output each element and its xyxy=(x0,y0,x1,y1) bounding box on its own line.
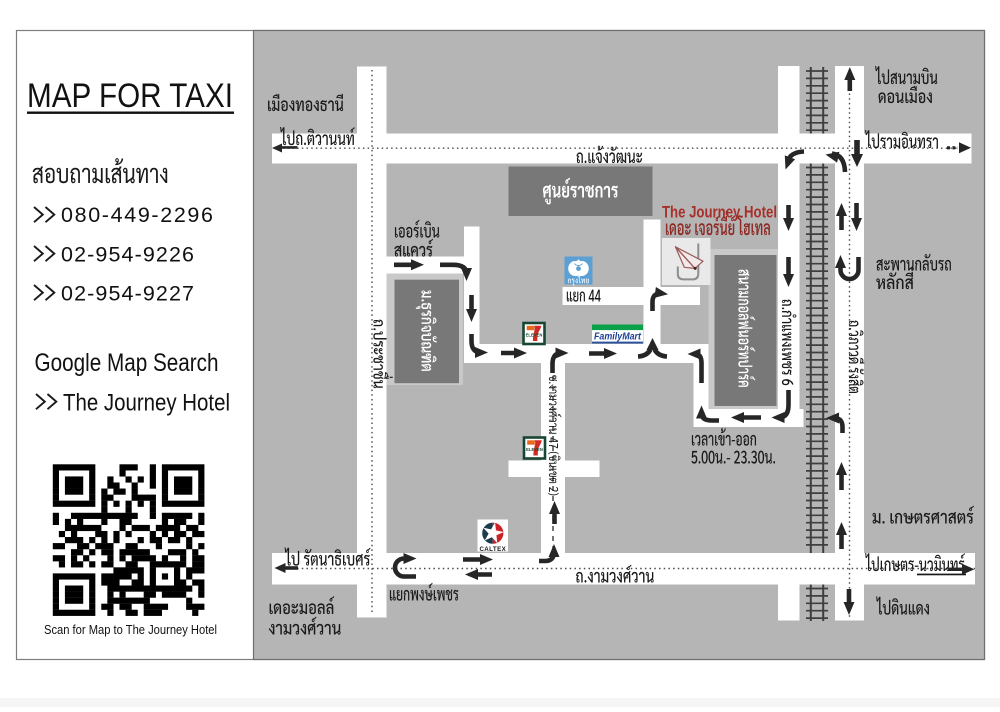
svg-text:02-954-9226: 02-954-9226 xyxy=(61,243,194,267)
svg-text:080-449-2296: 080-449-2296 xyxy=(61,203,213,227)
svg-text:Google Map Search: Google Map Search xyxy=(35,349,219,377)
svg-text:CALTEX: CALTEX xyxy=(479,546,506,553)
svg-text:FamilyMart: FamilyMart xyxy=(594,332,642,343)
svg-text:ELEVEN: ELEVEN xyxy=(526,333,543,338)
svg-text:The Journey Hotel: The Journey Hotel xyxy=(63,390,230,417)
svg-text:Scan for Map to The Journey Ho: Scan for Map to The Journey Hotel xyxy=(44,623,217,637)
svg-text:The Journey Hotel: The Journey Hotel xyxy=(662,204,777,222)
svg-text:ELEVEN: ELEVEN xyxy=(526,447,543,452)
svg-text:MAP FOR TAXI: MAP FOR TAXI xyxy=(27,77,233,115)
svg-text:02-954-9227: 02-954-9227 xyxy=(61,282,194,306)
